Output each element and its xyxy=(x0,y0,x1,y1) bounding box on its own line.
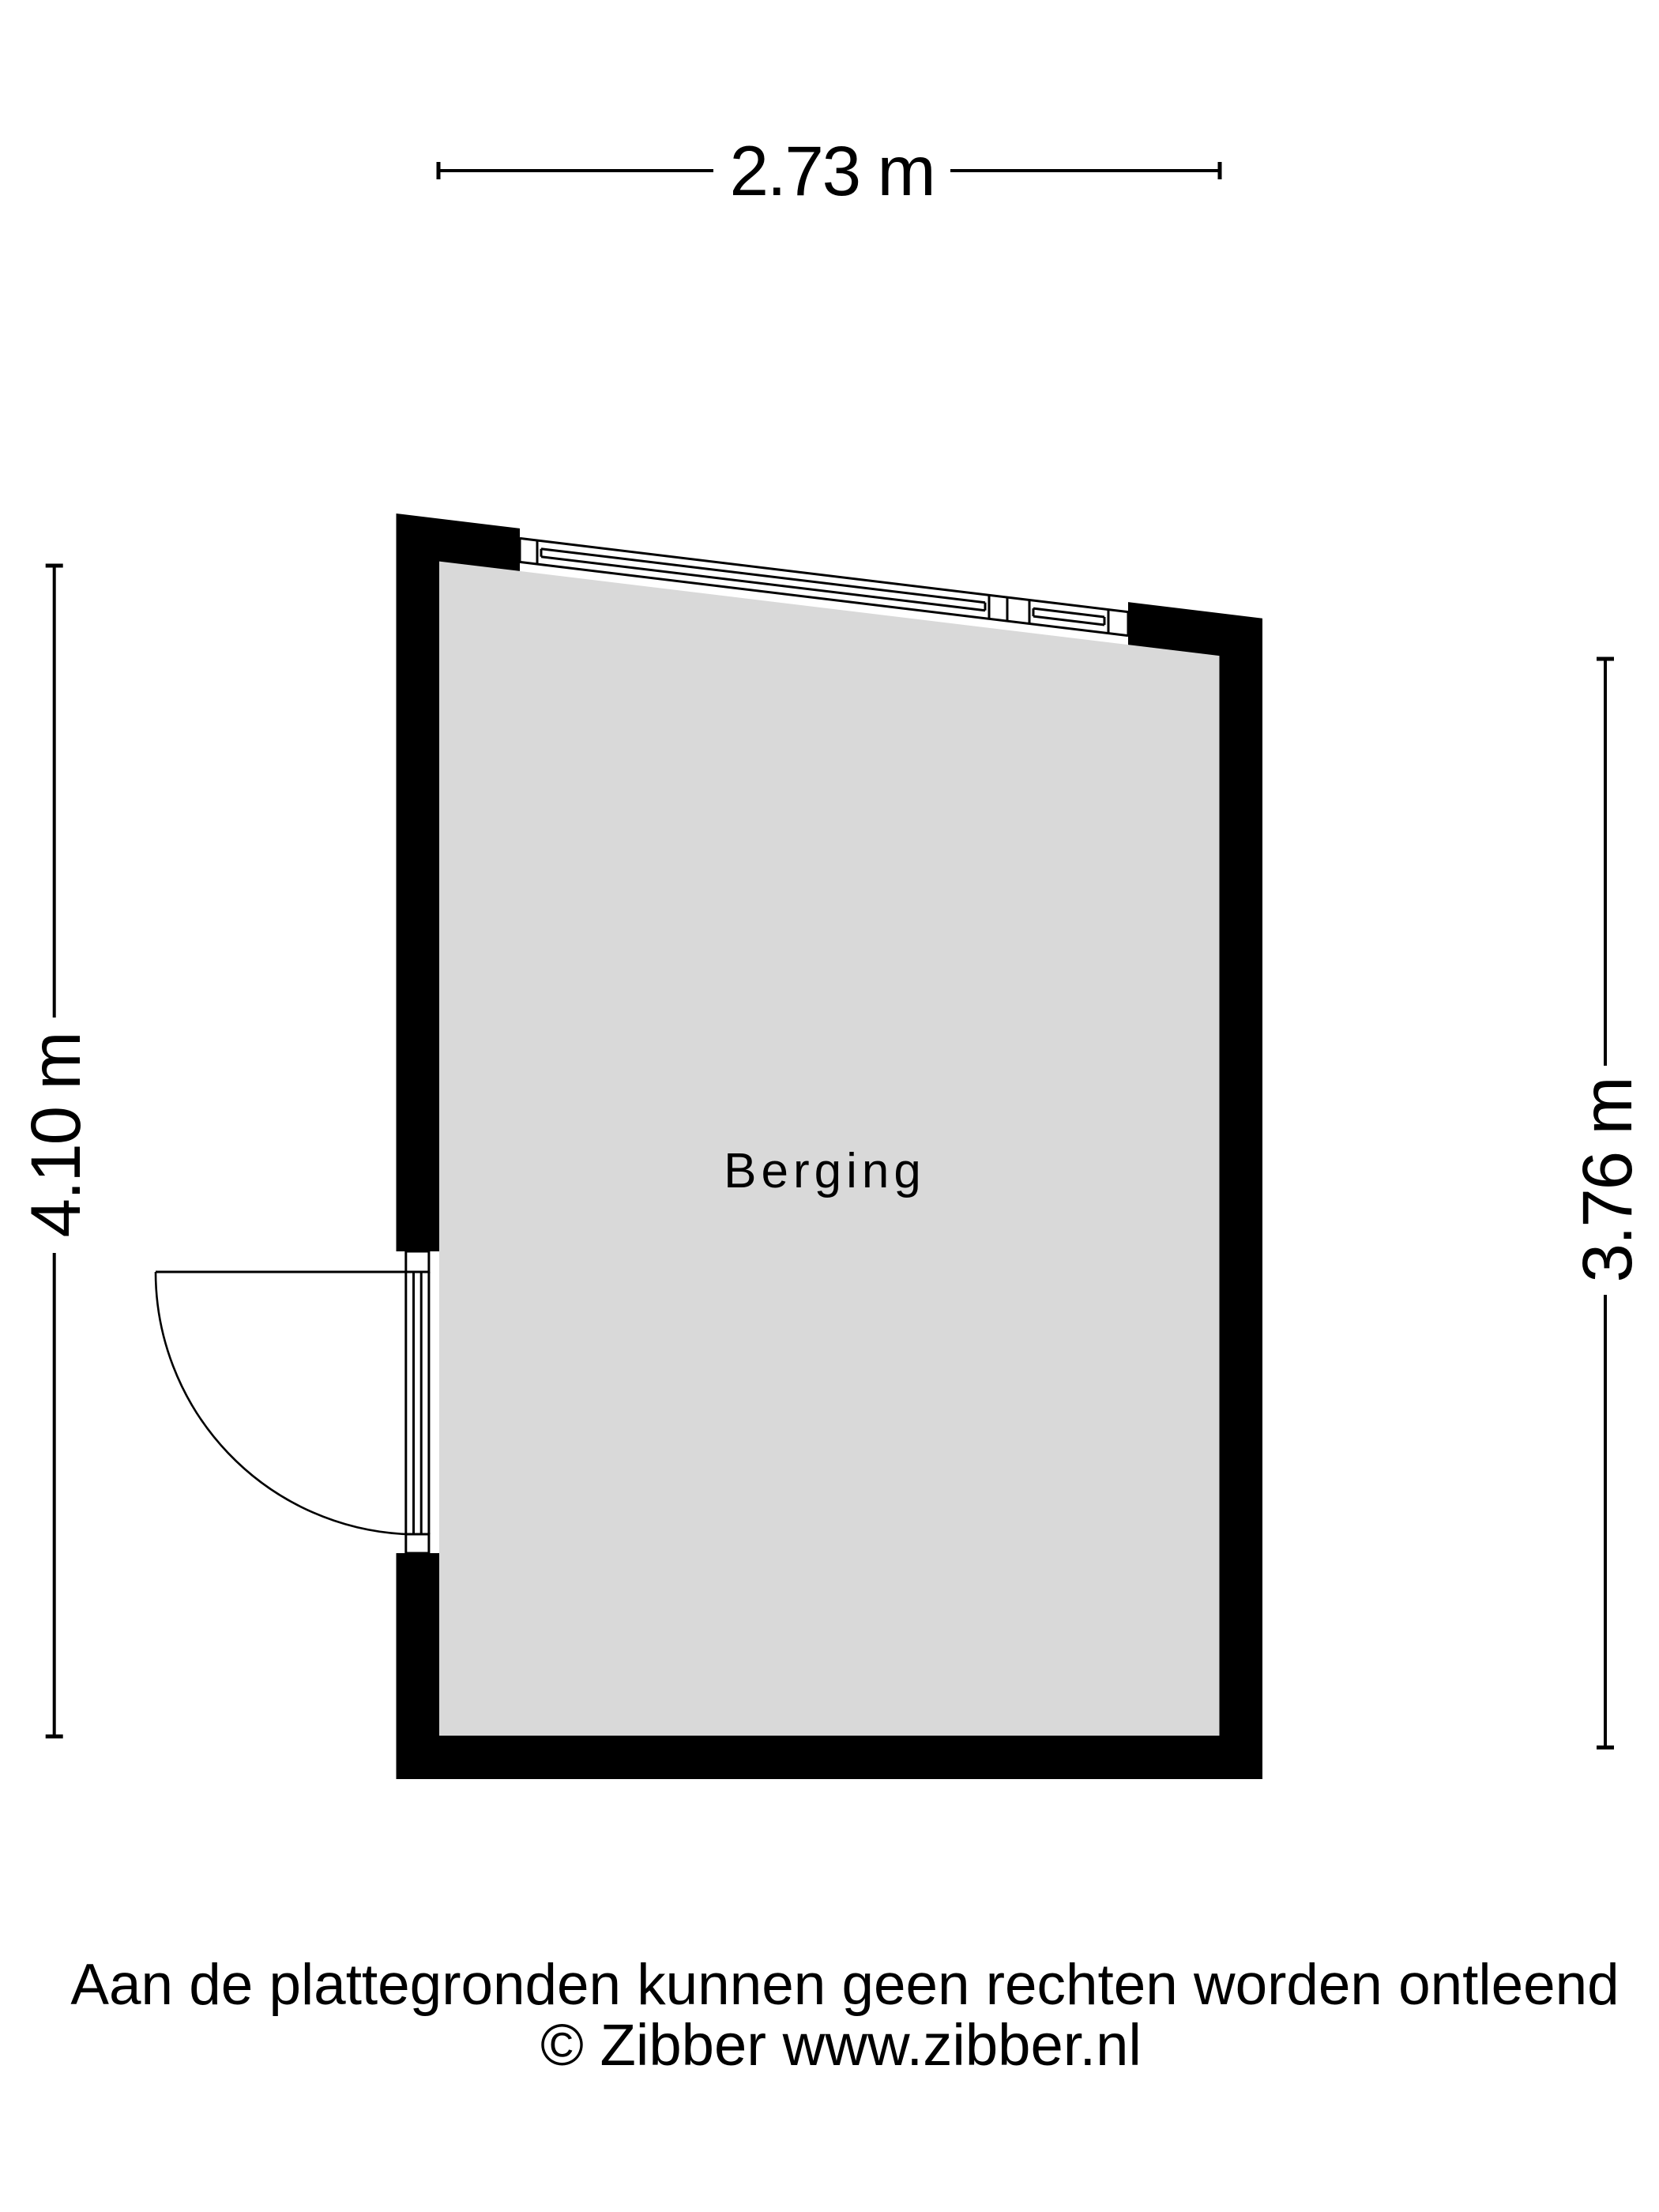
svg-text:Aan de plattegronden kunnen ge: Aan de plattegronden kunnen geen rechten… xyxy=(70,1953,1619,2017)
svg-text:Berging: Berging xyxy=(724,1144,926,1198)
svg-text:4.10 m: 4.10 m xyxy=(16,1033,95,1238)
svg-text:© Zibber www.zibber.nl: © Zibber www.zibber.nl xyxy=(540,2012,1142,2078)
svg-text:2.73 m: 2.73 m xyxy=(730,131,935,210)
svg-text:3.76 m: 3.76 m xyxy=(1567,1078,1646,1283)
